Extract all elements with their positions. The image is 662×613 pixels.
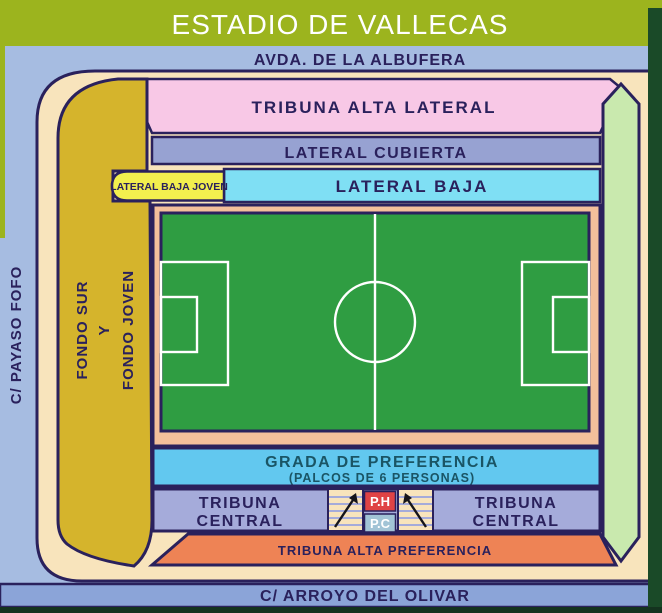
tribuna-central-left-label-1: TRIBUNA	[199, 495, 282, 512]
lateral-baja-label: LATERAL BAJA	[336, 177, 489, 196]
right-dark-edge	[648, 8, 662, 613]
grada-preferencia-sublabel: (PALCOS DE 6 PERSONAS)	[289, 471, 475, 485]
street-top-label: AVDA. DE LA ALBUFERA	[254, 52, 466, 69]
street-bottom-label: C/ ARROYO DEL OLIVAR	[260, 588, 470, 605]
bottom-dark-edge	[0, 607, 662, 613]
tribuna-alta-lateral-label: TRIBUNA ALTA LATERAL	[252, 98, 497, 117]
tribuna-central-right-label-1: TRIBUNA	[475, 495, 558, 512]
lateral-cubierta-label: LATERAL CUBIERTA	[284, 145, 467, 162]
lateral-baja-joven-label: LATERAL BAJA JOVEN	[110, 181, 228, 193]
tribuna-central-left-label-2: CENTRAL	[197, 513, 284, 530]
palco-pc-label: P.C	[370, 516, 391, 531]
fondo-sur-label-3: FONDO JOVEN	[120, 270, 137, 390]
stadium-map: ESTADIO DE VALLECAS AVDA. DE LA ALBUFERA…	[0, 0, 662, 613]
tribuna-central-right-label-2: CENTRAL	[473, 513, 560, 530]
stadium-map-page: ESTADIO DE VALLECAS AVDA. DE LA ALBUFERA…	[0, 0, 662, 613]
palco-ph-label: P.H	[370, 494, 390, 509]
fondo-sur-label-2: Y	[96, 324, 113, 335]
left-green-sliver	[0, 46, 5, 238]
fondo-sur-label-1: FONDO SUR	[74, 281, 91, 380]
street-left-label: C/ PAYASO FOFO	[8, 266, 25, 404]
grada-preferencia-label: GRADA DE PREFERENCIA	[265, 454, 499, 471]
section-fondo-sur	[58, 79, 152, 566]
tribuna-alta-preferencia-label: TRIBUNA ALTA PREFERENCIA	[278, 543, 492, 558]
page-title: ESTADIO DE VALLECAS	[172, 9, 509, 40]
section-fondo-norte-strip	[603, 84, 639, 561]
